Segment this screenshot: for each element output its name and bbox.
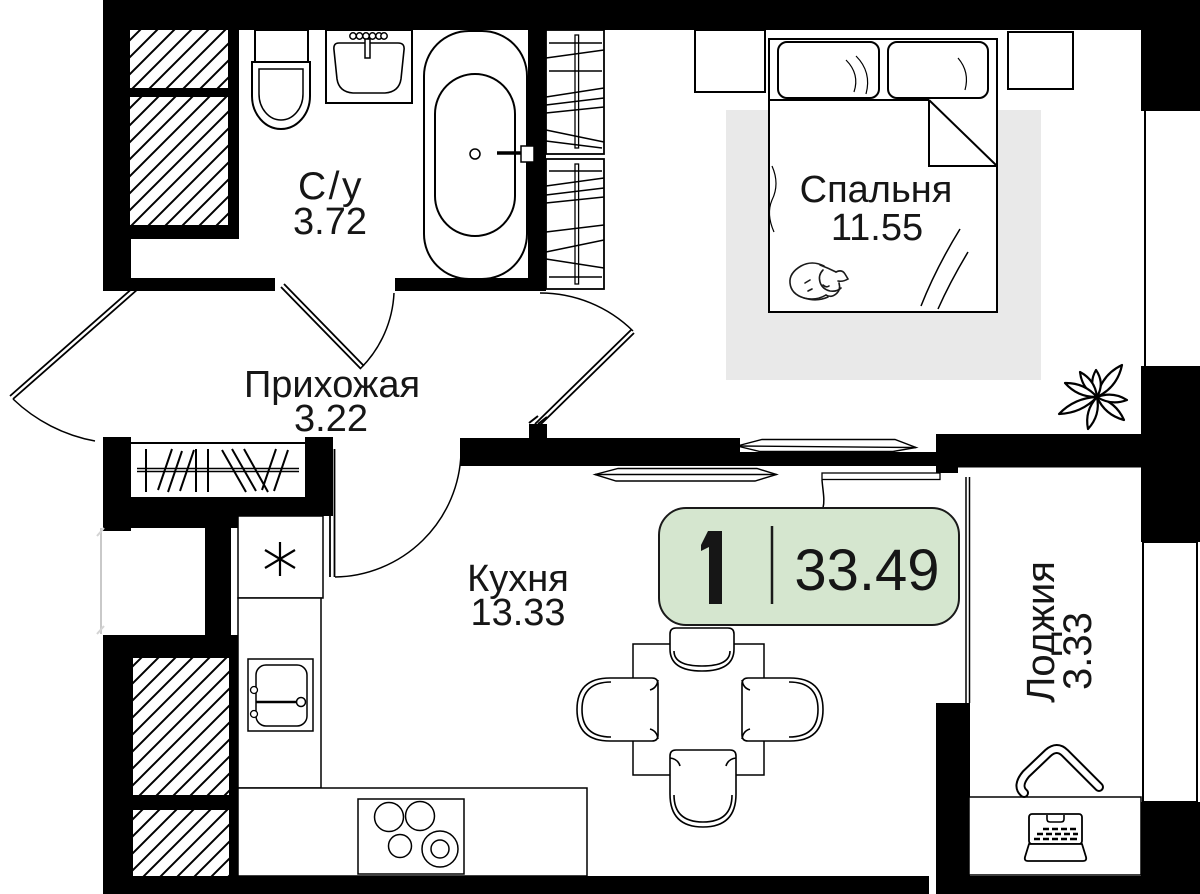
- svg-text:3.72: 3.72: [293, 201, 367, 243]
- svg-text:3.22: 3.22: [294, 398, 368, 440]
- svg-text:33.49: 33.49: [794, 538, 939, 603]
- svg-text:Спальня: Спальня: [800, 169, 953, 211]
- svg-text:11.55: 11.55: [831, 207, 923, 249]
- svg-text:3.33: 3.33: [1056, 612, 1100, 690]
- svg-text:13.33: 13.33: [470, 592, 565, 634]
